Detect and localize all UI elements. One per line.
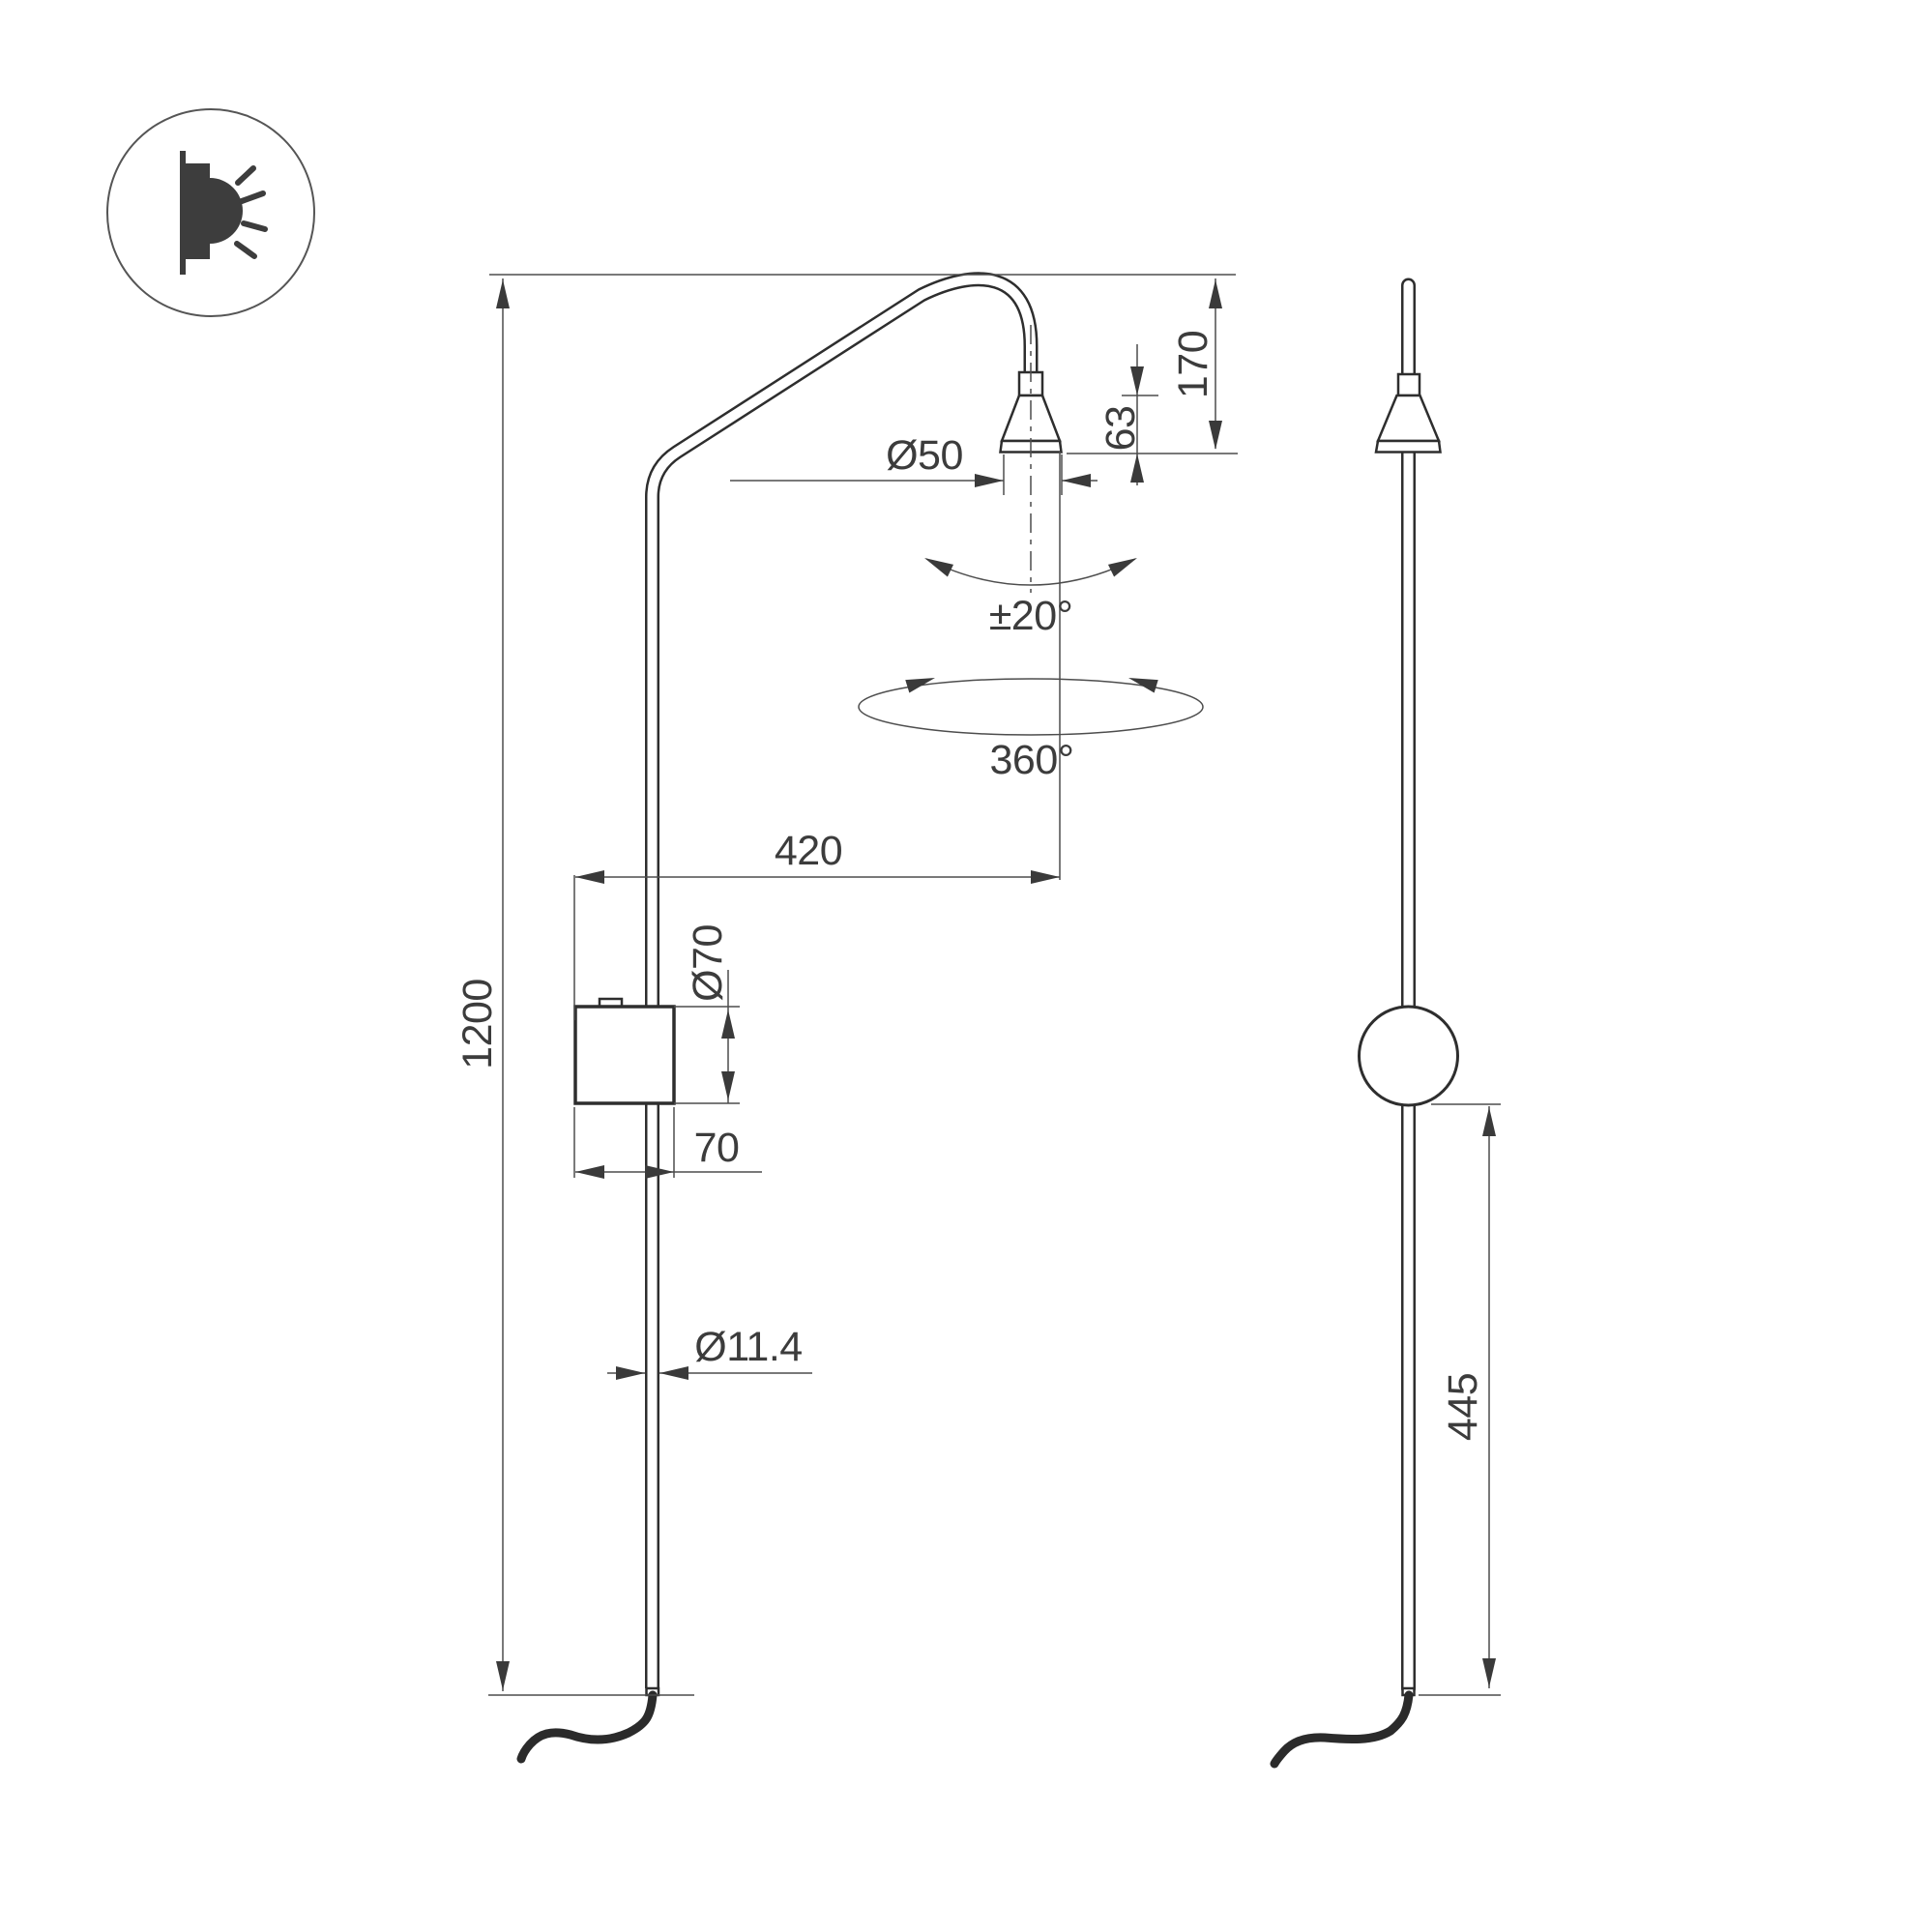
- icon-lamp-body: [186, 163, 210, 259]
- canvas-background: [0, 0, 1932, 1932]
- dim-label-head-height: 63: [1098, 406, 1144, 452]
- side-head-joint: [1398, 374, 1420, 395]
- dim-label-lower-section: 445: [1440, 1373, 1486, 1441]
- canopy-box: [575, 1007, 674, 1103]
- dim-label-head-diameter: Ø50: [886, 432, 963, 479]
- dim-label-tilt-range: ±20°: [989, 593, 1073, 639]
- dim-label-canopy-diameter: Ø70: [685, 924, 731, 1002]
- dimension-drawing: 1200 170 63 Ø50 ±20° 360° 420 Ø70 70 Ø11…: [0, 0, 1932, 1932]
- icon-wall-line: [180, 151, 186, 275]
- side-head-rim: [1376, 441, 1441, 453]
- dim-label-swivel-range: 360°: [990, 737, 1074, 783]
- side-canopy-ball: [1360, 1007, 1458, 1105]
- dim-label-canopy-width: 70: [694, 1125, 740, 1171]
- dim-label-arm-reach: 420: [775, 828, 842, 874]
- dim-label-head-drop: 170: [1170, 331, 1216, 398]
- wall-light-icon: [107, 109, 314, 316]
- dim-label-pole-diameter: Ø11.4: [694, 1324, 802, 1370]
- dim-label-overall-height: 1200: [454, 979, 501, 1069]
